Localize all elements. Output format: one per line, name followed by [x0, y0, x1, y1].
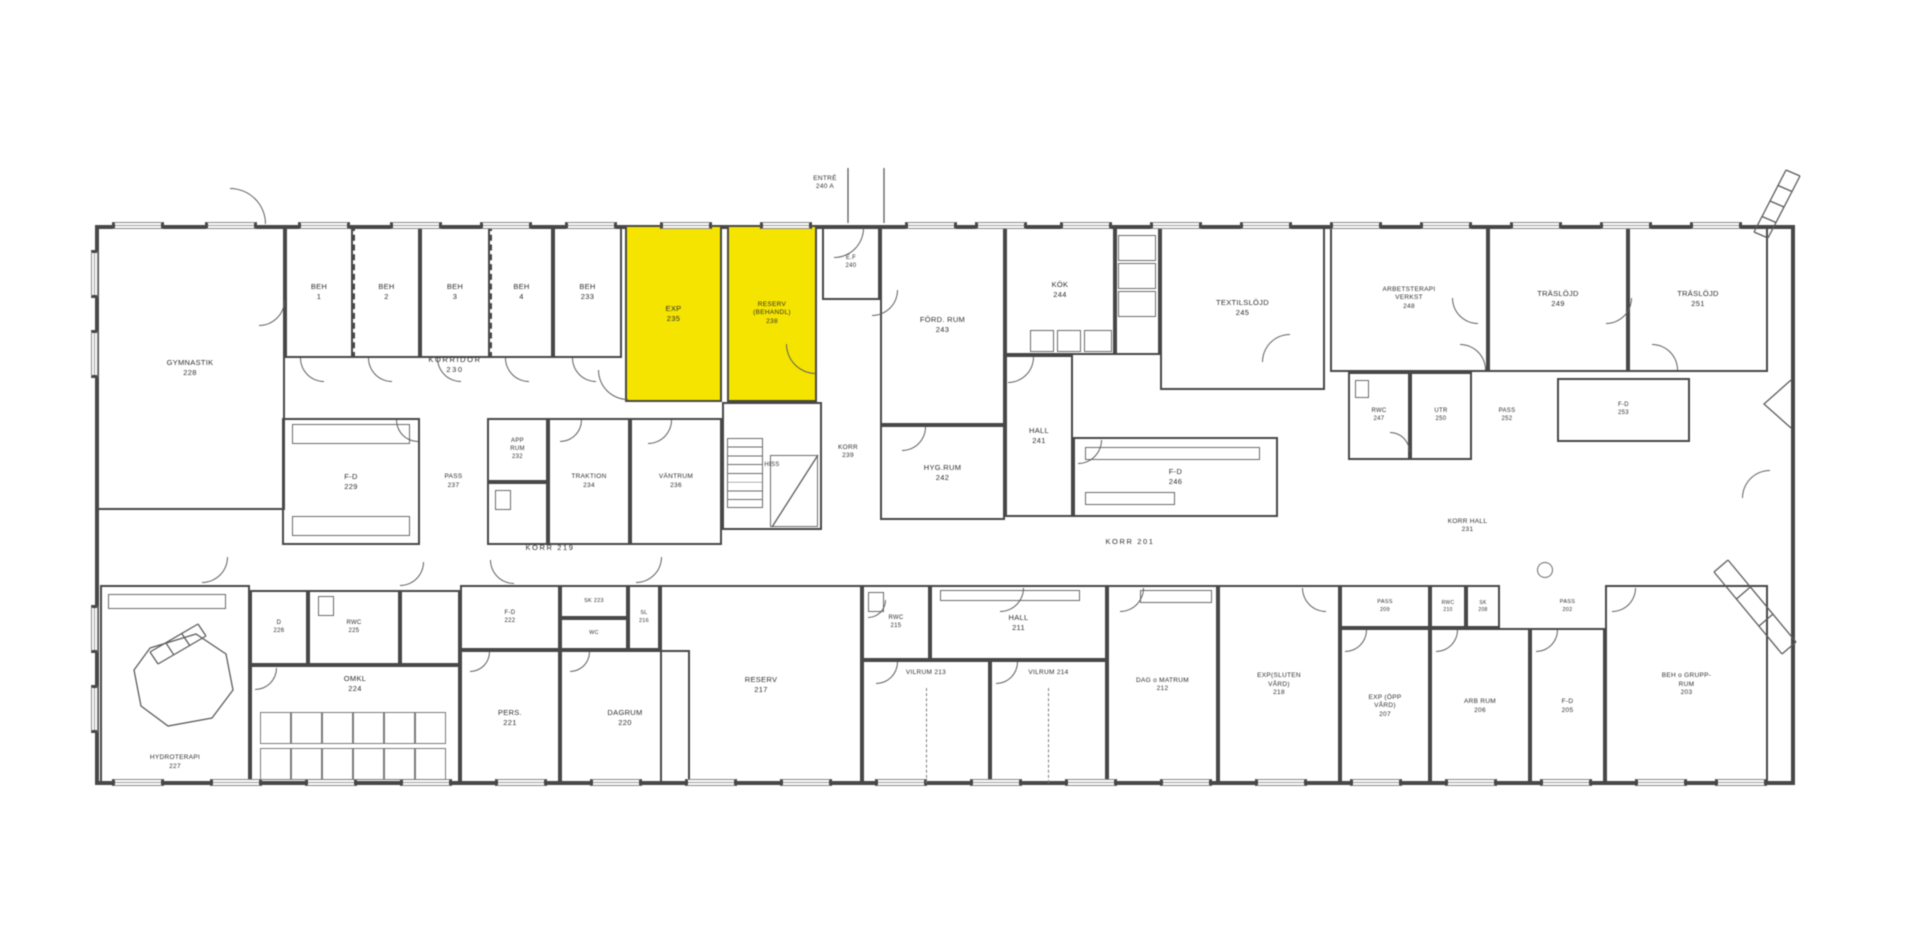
floor-plan: GYMNASTIK228BEH1BEH2BEH3BEH4BEH233KORRID…	[0, 0, 1920, 928]
room-label: BEH	[513, 282, 529, 292]
room-label: 226	[274, 628, 285, 636]
locker-stall	[291, 712, 322, 744]
fixture-rect	[318, 596, 334, 616]
window	[660, 222, 712, 229]
room-pass-252: PASS252	[1472, 372, 1542, 460]
window	[565, 222, 617, 229]
fixture-rect	[292, 516, 410, 536]
room-label: 224	[348, 684, 361, 694]
room-label: 2	[384, 292, 388, 302]
window	[1690, 222, 1742, 229]
room-label: (BEHANDL)	[753, 309, 791, 317]
room-label: 218	[1273, 689, 1285, 697]
room-label: F-D	[1562, 698, 1574, 706]
room-label: EXP	[666, 304, 682, 314]
window	[91, 250, 98, 298]
room-label: 248	[1403, 303, 1415, 311]
room-pass-202: PASS202	[1530, 585, 1605, 628]
room-label: 215	[891, 623, 902, 631]
room-label: 228	[183, 368, 196, 378]
room-label: 240	[846, 263, 857, 271]
room-label: 1	[317, 292, 321, 302]
fixture-rect	[108, 594, 226, 609]
window	[1240, 222, 1292, 229]
locker-stall	[291, 748, 322, 780]
room-label: 217	[754, 685, 767, 695]
window	[1350, 779, 1402, 786]
room-label: 247	[1374, 416, 1385, 424]
room-label: 236	[670, 482, 682, 490]
room-label: HYG.RUM	[924, 463, 962, 473]
room-label: 250	[1436, 416, 1447, 424]
room-label: 212	[1157, 685, 1169, 693]
window	[480, 222, 532, 229]
fixture-rect	[292, 424, 410, 444]
locker-stall	[260, 748, 291, 780]
fixture-dashv	[1048, 688, 1049, 783]
window	[1715, 779, 1767, 786]
room-label: RWC	[1371, 408, 1386, 416]
fixture-stairs	[727, 438, 763, 508]
room-label: 240 A	[816, 183, 834, 191]
room-label: VÄNTRUM	[659, 473, 693, 481]
locker-stall	[415, 712, 446, 744]
fixture-rect	[1085, 492, 1175, 505]
room-lobby-omkl	[400, 590, 460, 665]
fixture-dashv	[926, 688, 927, 783]
fixture-rect	[1085, 447, 1260, 460]
window	[495, 779, 547, 786]
room-label: 210	[1443, 607, 1452, 614]
fixture-rect	[1118, 263, 1156, 289]
room-label: E.F	[846, 255, 856, 263]
room-beh-233: BEH233	[553, 225, 622, 358]
room-label: 238	[766, 318, 778, 326]
room-entre-240a: ENTRÉ240 A	[790, 168, 860, 198]
room-label: TRÄSLÖJD	[1677, 289, 1719, 299]
room-label: PASS	[1377, 599, 1392, 606]
room-fd-205: F-D205	[1530, 628, 1605, 785]
room-exp-opp-vard-207: EXP (ÖPPVÅRD)207	[1340, 628, 1430, 785]
room-label: WC	[589, 630, 599, 637]
room-korr-201: KORR 201	[1080, 532, 1180, 552]
room-label: 207	[1379, 711, 1391, 719]
window	[210, 779, 262, 786]
fixture-rect	[1118, 235, 1156, 261]
room-label: 239	[842, 452, 854, 460]
room-label: RWC	[346, 620, 361, 628]
locker-stall	[384, 712, 415, 744]
room-label: ENTRÉ	[813, 175, 837, 183]
room-label: KORR HALL	[1448, 518, 1488, 526]
window	[1150, 222, 1202, 229]
room-label: GYMNASTIK	[167, 358, 214, 368]
room-traslojd-251: TRÄSLÖJD251	[1628, 225, 1768, 372]
room-label: F-D	[1618, 402, 1629, 410]
room-label: 209	[1380, 607, 1390, 614]
room-label: 206	[1474, 707, 1486, 715]
room-label: 252	[1502, 416, 1513, 424]
window	[1255, 779, 1307, 786]
room-label: 227	[169, 763, 181, 771]
room-label: KÖK	[1052, 280, 1069, 290]
room-label: BEH	[579, 282, 595, 292]
room-label: 221	[503, 718, 516, 728]
room-d-226: D226	[250, 590, 308, 665]
room-label: 205	[1562, 707, 1574, 715]
room-label: TRAKTION	[571, 473, 606, 481]
room-label: BEH	[378, 282, 394, 292]
room-beh-3: BEH3	[420, 225, 490, 358]
room-textilslojd-245: TEXTILSLÖJD245	[1160, 225, 1325, 390]
room-label: 241	[1032, 436, 1045, 446]
room-label: KORR	[838, 444, 858, 452]
locker-stall	[353, 712, 384, 744]
room-label: 225	[349, 628, 360, 636]
door-arc	[230, 188, 266, 224]
room-fd-253: F-D253	[1557, 378, 1690, 442]
room-fd-222: F-D222	[460, 585, 560, 650]
room-exp-235: EXP235	[625, 225, 722, 402]
window	[91, 605, 98, 653]
room-label: BEH o GRUPP-	[1662, 672, 1711, 680]
room-label: 251	[1691, 299, 1704, 309]
room-exp-sluten-vard-218: EXP(SLUTENVÅRD)218	[1218, 585, 1340, 785]
room-beh-o-grupprum-203: BEH o GRUPP-RUM203	[1605, 585, 1768, 785]
room-label: RWC	[888, 615, 903, 623]
fixture-rect	[1355, 380, 1369, 398]
room-label: RUM	[510, 446, 525, 454]
room-label: OMKL	[344, 674, 366, 684]
room-label: VILRUM 214	[1028, 669, 1068, 677]
room-label: 234	[583, 482, 595, 490]
room-label: KORR 201	[1105, 537, 1154, 547]
room-label: D	[277, 620, 282, 628]
locker-stall	[322, 748, 353, 780]
room-sk-223: SK 223	[560, 585, 628, 618]
room-label: FÖRD. RUM	[920, 315, 965, 325]
room-label: 233	[581, 292, 594, 302]
window	[760, 222, 812, 229]
window	[390, 222, 442, 229]
locker-stall	[322, 712, 353, 744]
room-beh-4: BEH4	[490, 225, 553, 358]
window	[685, 779, 737, 786]
fixture-rect	[1057, 330, 1081, 352]
room-sk-208: SK208	[1466, 585, 1500, 628]
room-arb-rum-206: ARB RUM206	[1430, 628, 1530, 785]
locker-stall	[415, 748, 446, 780]
window	[590, 779, 642, 786]
room-label: HYDROTERAPI	[150, 754, 200, 762]
fixture-stalls	[260, 712, 446, 744]
room-label: RESERV	[758, 301, 786, 309]
room-label: 243	[936, 325, 949, 335]
room-label: 244	[1053, 290, 1066, 300]
fixture-rect	[1118, 291, 1156, 317]
room-label: VÅRD)	[1374, 702, 1396, 710]
window	[91, 330, 98, 378]
room-label: RESERV	[745, 675, 778, 685]
room-label: ARBETSTERAPI	[1382, 286, 1435, 294]
room-label: 211	[1012, 623, 1025, 633]
room-reserv-238: RESERV(BEHANDL)238	[727, 225, 817, 402]
room-label: 231	[1462, 526, 1474, 534]
room-hyg-rum-242: HYG.RUM242	[880, 425, 1005, 520]
room-label: 246	[1169, 477, 1182, 487]
room-beh-1: BEH1	[285, 225, 353, 358]
room-label: SK 223	[584, 598, 604, 605]
room-label: 229	[344, 482, 357, 492]
window	[1420, 222, 1472, 229]
room-dag-o-matrum-212: DAG o MATRUM212	[1107, 585, 1218, 785]
room-label: TEXTILSLÖJD	[1216, 298, 1269, 308]
room-label: APP	[511, 438, 524, 446]
room-korr-239: KORR239	[822, 436, 874, 468]
window	[975, 222, 1027, 229]
fixture-circle	[1537, 562, 1553, 578]
window	[1160, 779, 1212, 786]
room-korr-219: KORR 219	[495, 538, 605, 558]
room-beh-2: BEH2	[353, 225, 420, 358]
room-label: 232	[512, 454, 523, 462]
room-label: 220	[618, 718, 631, 728]
room-label: F-D	[505, 610, 516, 618]
room-label: 253	[1618, 410, 1629, 418]
fixture-rect	[1030, 330, 1054, 352]
room-vantrum-236: VÄNTRUM236	[630, 418, 722, 545]
window	[1330, 222, 1382, 229]
room-label: PASS	[1560, 599, 1575, 606]
room-label: EXP(SLUTEN	[1257, 672, 1301, 680]
locker-stall	[353, 748, 384, 780]
room-label: PASS	[444, 473, 462, 481]
window	[970, 779, 1022, 786]
room-label: 249	[1551, 299, 1564, 309]
window	[112, 222, 164, 229]
room-label: F-D	[344, 472, 357, 482]
room-label: BEH	[311, 282, 327, 292]
locker-stall	[384, 748, 415, 780]
room-label: 237	[448, 482, 460, 490]
room-label: PERS.	[498, 708, 522, 718]
room-label: HALL	[1029, 426, 1049, 436]
room-label: KORR 219	[525, 543, 574, 553]
window	[1540, 779, 1592, 786]
window	[1445, 779, 1497, 786]
room-rwc-210: RWC210	[1430, 585, 1466, 628]
room-label: SL	[640, 610, 647, 617]
room-label: ARB RUM	[1464, 698, 1496, 706]
fixture-rect	[495, 490, 511, 510]
room-label: HALL	[1009, 613, 1029, 623]
room-pass-237: PASS237	[420, 418, 487, 545]
room-sl-216: SL216	[628, 585, 660, 650]
room-label: VÅRD)	[1268, 681, 1290, 689]
room-gymnastik-228: GYMNASTIK228	[95, 225, 285, 510]
locker-stall	[260, 712, 291, 744]
room-label: 4	[519, 292, 523, 302]
room-label: 235	[667, 314, 680, 324]
room-label: DAGRUM	[607, 708, 642, 718]
window	[905, 222, 957, 229]
room-label: VILRUM 213	[906, 669, 946, 677]
room-label: 208	[1478, 607, 1487, 614]
room-label: 216	[639, 618, 649, 625]
window	[400, 779, 452, 786]
room-reserv-217: RESERV217	[660, 585, 862, 785]
room-wc-223: WC	[560, 618, 628, 650]
window	[112, 779, 164, 786]
room-label: PASS	[1499, 408, 1516, 416]
fixture-rect	[770, 455, 818, 527]
room-label: 245	[1236, 308, 1249, 318]
room-label: UTR	[1434, 408, 1447, 416]
window	[305, 779, 357, 786]
window	[1510, 222, 1562, 229]
room-label: DAG o MATRUM	[1136, 677, 1189, 685]
room-label: 202	[1562, 607, 1572, 614]
window	[875, 779, 927, 786]
window	[1600, 222, 1652, 229]
window	[298, 222, 350, 229]
window	[1635, 779, 1687, 786]
room-label: 3	[453, 292, 457, 302]
room-app-rum-232: APPRUM232	[487, 418, 548, 482]
fixture-rect	[1084, 330, 1112, 352]
room-label: VERKST	[1395, 294, 1423, 302]
fixture-stalls	[260, 748, 446, 780]
fixture-rect	[1140, 590, 1212, 603]
room-utr-250: UTR250	[1410, 372, 1472, 460]
room-korr-hall-231: KORR HALL231	[1420, 510, 1515, 542]
room-ford-rum-243: FÖRD. RUM243	[880, 225, 1005, 425]
room-label: TRÄSLÖJD	[1537, 289, 1579, 299]
window	[780, 779, 832, 786]
room-label: 242	[936, 473, 949, 483]
room-label: 222	[505, 618, 516, 626]
window	[91, 685, 98, 733]
room-label: BEH	[447, 282, 463, 292]
room-pass-209: PASS209	[1340, 585, 1430, 628]
room-label: F-D	[1169, 467, 1182, 477]
window	[1060, 222, 1112, 229]
room-label: RUM	[1679, 681, 1695, 689]
room-hydroterapi-227: HYDROTERAPI227	[100, 585, 250, 785]
window	[1065, 779, 1117, 786]
room-label: 203	[1681, 689, 1693, 697]
